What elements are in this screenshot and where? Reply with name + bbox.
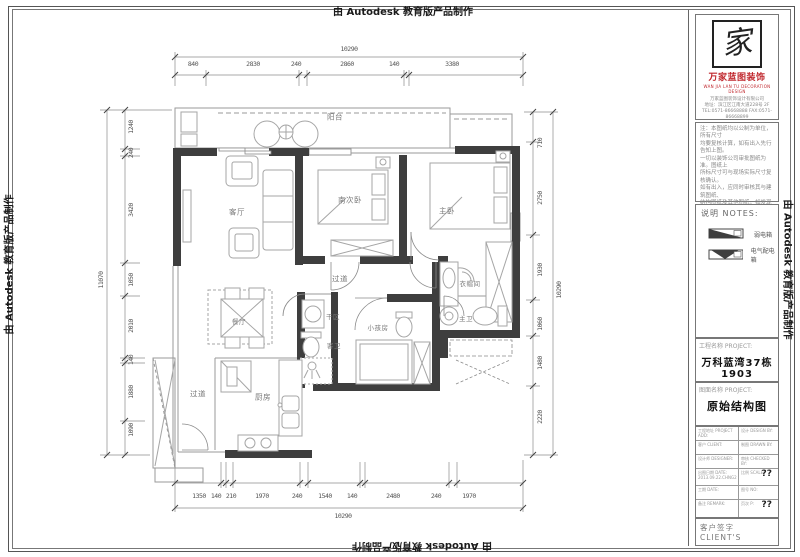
- info-cell: 工期 DATE:: [696, 486, 739, 499]
- dim-label: 10290: [340, 45, 357, 53]
- project-name-box: 工程名称 PROJECT: 万科蓝湾37栋1903: [695, 338, 779, 382]
- room-label-dry-area: 干区: [326, 311, 340, 321]
- dim-label: 240: [291, 60, 301, 68]
- info-cell-text: 设计 DESIGN BY:: [741, 428, 773, 433]
- info-cell: 图号 NO:: [739, 486, 778, 499]
- dim-label: 140: [211, 492, 221, 500]
- title-block-panel: 家 万家蓝图装饰 WAN JIA LAN TU DECORATION DESIG…: [692, 10, 785, 546]
- room-label-kitchen: 厨房: [255, 392, 271, 403]
- dim-label: 2860: [340, 60, 354, 68]
- legend-item: 弱电箱: [708, 228, 778, 240]
- drawing-sheet: 由 Autodesk 教育版产品制作 由 Autodesk 教育版产品制作 由 …: [0, 0, 800, 557]
- room-label-dining: 餐厅: [232, 316, 246, 326]
- distribution-box-icon: [708, 249, 743, 261]
- legend-box: 说明 NOTES: 弱电箱 电气配电箱: [695, 204, 779, 338]
- project-name-label: 工程名称 PROJECT:: [696, 339, 778, 352]
- company-logo: 家: [712, 20, 762, 68]
- info-row: 工程地址 PROJECT ADD: 设计 DESIGN BY:: [696, 427, 778, 441]
- dim-label: 2220: [536, 410, 544, 424]
- room-label-cloakroom: 衣帽间: [460, 278, 481, 288]
- company-name-en: WAN JIA LAN TU DECORATION DESIGN: [696, 84, 778, 94]
- room-label-living: 客厅: [229, 207, 245, 218]
- dim-label: 140: [347, 492, 357, 500]
- company-info: 万家蓝图装饰设计有限公司 地址：滨江区江南大道228号 2F TEL:0571-…: [696, 97, 778, 121]
- floor-plan-svg: [0, 0, 800, 557]
- page-value: ??: [762, 503, 772, 508]
- furniture: [155, 112, 512, 466]
- dim-label: 11070: [97, 271, 105, 288]
- dim-label: 240: [292, 492, 302, 500]
- dim-label: 1540: [318, 492, 332, 500]
- legend-label: 电气配电箱: [751, 246, 778, 264]
- dim-label: 240: [127, 148, 135, 158]
- room-label-corridor-upper: 过道: [332, 274, 348, 285]
- legend-label: 弱电箱: [754, 230, 772, 239]
- dim-label: 1350: [192, 492, 206, 500]
- info-row: 出图日期 DATE: 2013.09.22.CHNG2 比例 SCALE:??: [696, 469, 778, 487]
- info-cell: 客户 CLIENT:: [696, 441, 739, 454]
- client-signature-label: 客户签字 CLIENT'S: [696, 519, 778, 545]
- logo-glyph: 家: [720, 27, 754, 61]
- scale-value: ??: [762, 472, 772, 477]
- info-cell: 比例 SCALE:??: [739, 469, 778, 486]
- dim-label: 1880: [127, 385, 135, 399]
- info-cell-text: 审核 CHECKED BY:: [741, 456, 770, 466]
- info-cell: 设计 DESIGN BY:: [739, 427, 778, 440]
- dim-label: 10290: [555, 281, 563, 298]
- drawing-name-box: 图面名称 PROJECT: 原始结构图: [695, 382, 779, 426]
- notes-header: 说明 NOTES:: [696, 205, 778, 222]
- dim-label: 1930: [536, 263, 544, 277]
- room-label-corridor-lower: 过道: [190, 389, 206, 400]
- drawing-name-value: 原始结构图: [696, 398, 778, 414]
- dim-label: 1480: [536, 356, 544, 370]
- dim-label: 710: [536, 138, 544, 148]
- dim-label: 2830: [246, 60, 260, 68]
- dim-label: 3420: [127, 203, 135, 217]
- room-label-south-bedroom: 南次卧: [338, 195, 362, 206]
- info-row: 客户 CLIENT: 制图 DRAWN BY:: [696, 441, 778, 455]
- dim-label: 3380: [445, 60, 459, 68]
- weak-current-box-icon: [708, 228, 746, 240]
- dim-label: 1240: [127, 120, 135, 134]
- info-cell: 制图 DRAWN BY:: [739, 441, 778, 454]
- dim-label: 1970: [462, 492, 476, 500]
- dim-label: 140: [389, 60, 399, 68]
- dim-label: 2750: [536, 191, 544, 205]
- project-name-value: 万科蓝湾37栋1903: [696, 354, 778, 380]
- dim-label: 210: [226, 492, 236, 500]
- dim-label: 10290: [334, 512, 351, 520]
- dim-label: 1050: [127, 273, 135, 287]
- logo-box: 家 万家蓝图装饰 WAN JIA LAN TU DECORATION DESIG…: [695, 14, 779, 120]
- info-cell-text: 制图 DRAWN BY:: [741, 442, 773, 447]
- info-cell: 备注 REMARK:: [696, 500, 739, 517]
- company-name: 万家蓝图装饰: [696, 70, 778, 83]
- dim-label: 840: [188, 60, 198, 68]
- room-label-kids-room: 小孩房: [368, 322, 389, 332]
- dim-label: 1090: [127, 423, 135, 437]
- info-row: 设计师 DESIGNER: 审核 CHECKED BY:: [696, 455, 778, 469]
- notes-box: 注：本图纸均以公制为单位，所有尺寸 均要复核计算，如有出入先行告知上图。 一切以…: [695, 122, 779, 202]
- info-cell: 工程地址 PROJECT ADD:: [696, 427, 739, 440]
- info-table: 工程地址 PROJECT ADD: 设计 DESIGN BY: 客户 CLIEN…: [695, 426, 779, 518]
- room-label-guest-bath: 客卫: [327, 340, 341, 350]
- dim-label: 1970: [255, 492, 269, 500]
- legend-item: 电气配电箱: [708, 246, 778, 264]
- room-label-balcony: 阳台: [327, 112, 343, 123]
- dim-label: 2010: [127, 319, 135, 333]
- drawing-name-label: 图面名称 PROJECT:: [696, 383, 778, 396]
- dim-label: 1060: [536, 317, 544, 331]
- info-cell: 页次 P:??: [739, 500, 778, 517]
- dim-label: 140: [127, 355, 135, 365]
- info-cell-text: 图号 NO:: [741, 487, 758, 492]
- client-signature-box: 客户签字 CLIENT'S: [695, 518, 779, 546]
- info-cell: 出图日期 DATE: 2013.09.22.CHNG2: [696, 469, 739, 486]
- info-cell-text: 页次 P:: [741, 501, 754, 506]
- room-label-master-bedroom: 主卧: [439, 206, 455, 217]
- dim-label: 2480: [386, 492, 400, 500]
- info-cell: 设计师 DESIGNER:: [696, 455, 739, 468]
- info-row: 工期 DATE: 图号 NO:: [696, 486, 778, 500]
- room-label-master-bath: 主卫: [459, 313, 473, 323]
- info-row: 备注 REMARK: 页次 P:??: [696, 500, 778, 517]
- info-cell: 审核 CHECKED BY:: [739, 455, 778, 468]
- dim-label: 240: [431, 492, 441, 500]
